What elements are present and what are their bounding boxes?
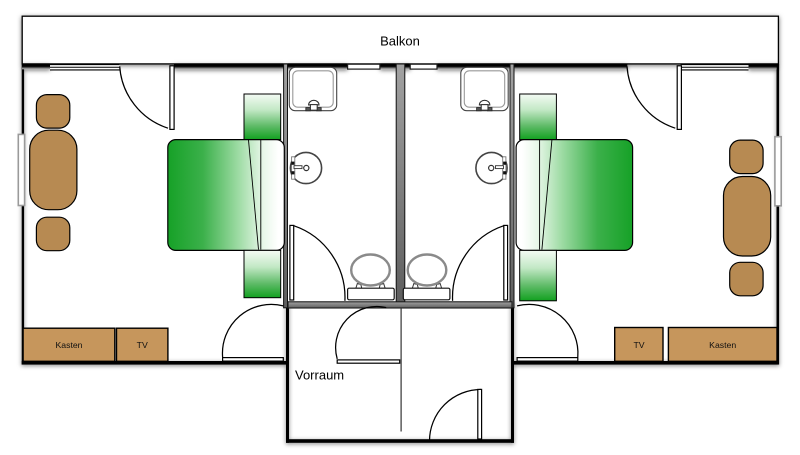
svg-text:Vorraum: Vorraum: [295, 368, 344, 383]
svg-text:TV: TV: [137, 340, 148, 350]
svg-text:Kasten: Kasten: [709, 340, 736, 350]
svg-text:Kasten: Kasten: [55, 340, 82, 350]
svg-text:Balkon: Balkon: [380, 34, 420, 49]
svg-text:TV: TV: [633, 340, 644, 350]
